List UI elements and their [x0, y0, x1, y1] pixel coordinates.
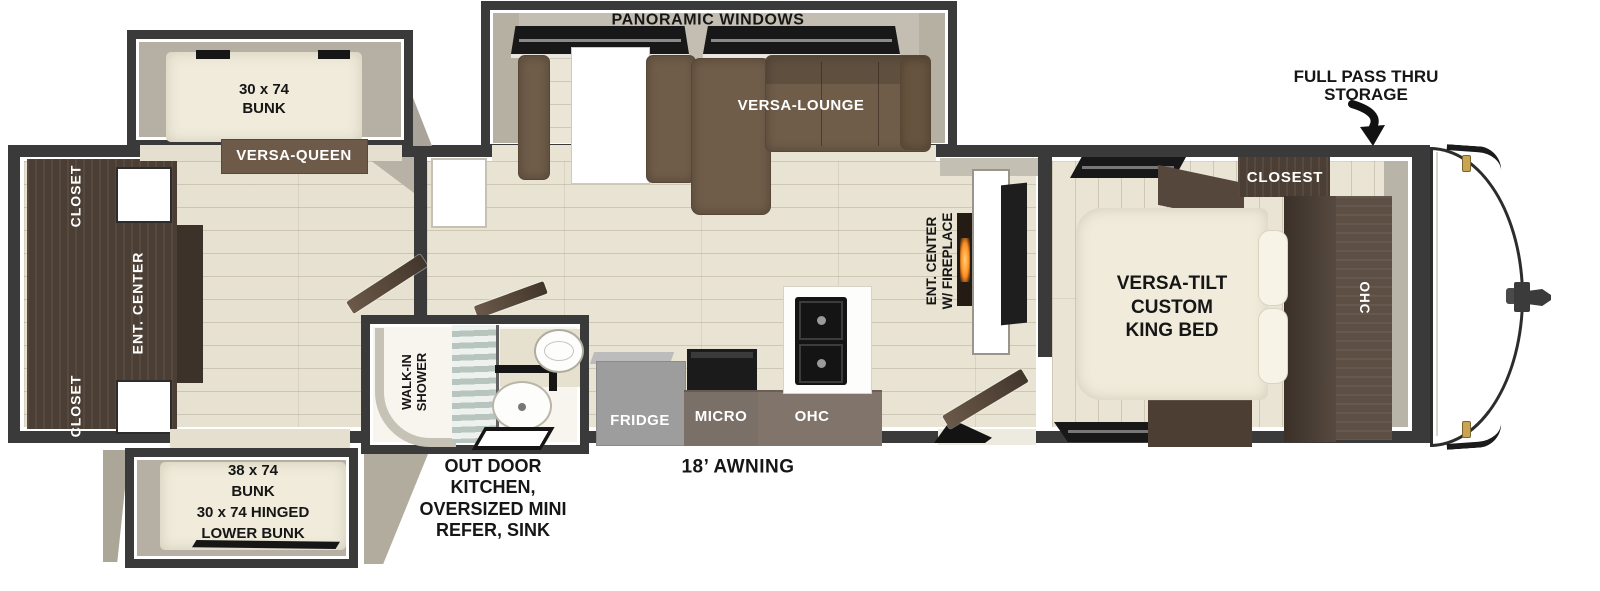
walk-in-shower-label: WALK-IN SHOWER	[399, 353, 429, 412]
kitchen-sink-drain-bottom	[817, 359, 826, 368]
microwave	[687, 349, 757, 391]
bedroom-ohc-cabinet	[1336, 196, 1392, 440]
fridge	[596, 361, 686, 446]
front-cap-seam	[1436, 152, 1438, 436]
floorplan-canvas: CLOSET ENT. CENTER CLOSET 30 x 74 BUNK V…	[0, 0, 1600, 591]
rear-closet-bottom-label: CLOSET	[68, 375, 85, 438]
panoramic-window-right-glass	[711, 39, 892, 42]
rear-ent-center-label: ENT. CENTER	[130, 252, 147, 355]
living-tv	[1001, 183, 1027, 326]
sofa-right-arm	[900, 58, 931, 150]
versa-lounge-label: VERSA-LOUNGE	[738, 97, 865, 115]
rear-cabinet-window-top	[116, 167, 172, 223]
front-cap-trim-bottom	[1445, 422, 1503, 450]
kitchen-sink-bowl-top	[799, 301, 843, 340]
panoramic-window-left-glass	[519, 39, 681, 42]
sofa-mid-section	[646, 55, 696, 183]
king-bed-label-line2: CUSTOM	[1131, 297, 1213, 318]
outdoor-kitchen-line4: REFER, SINK	[436, 520, 550, 540]
top-bunk-frame-right	[318, 50, 350, 59]
bottom-bunk-slide-opening	[170, 429, 350, 448]
toilet-seat-line	[544, 341, 574, 361]
bathroom-counter-edge-v	[549, 371, 557, 391]
bunkroom-partition-wall	[414, 145, 427, 323]
walk-in-shower-line2: SHOWER	[414, 353, 429, 412]
outdoor-kitchen-line2: KITCHEN,	[451, 477, 536, 497]
hitch-coupler	[1514, 282, 1530, 312]
fridge-label: FRIDGE	[610, 412, 670, 430]
bathroom-sink	[492, 381, 552, 431]
walk-in-shower-line1: WALK-IN	[399, 353, 414, 412]
rear-cabinet-window-bottom	[116, 380, 172, 434]
rear-closet-top-label: CLOSET	[68, 165, 85, 228]
panoramic-windows-label: PANORAMIC WINDOWS	[612, 10, 805, 29]
storage-arrow-icon	[1336, 100, 1396, 150]
awning-label: 18’ AWNING	[681, 457, 794, 480]
hitch-tongue	[1529, 289, 1551, 306]
microwave-top-vent	[691, 352, 753, 358]
ent-center-fireplace-line2: W/ FIREPLACE	[940, 213, 956, 310]
bottom-bunk-label-line1: 38 x 74	[228, 462, 278, 479]
sofa-chaise	[691, 58, 771, 215]
king-bed-label: VERSA-TILT CUSTOM KING BED	[1076, 272, 1268, 343]
top-bunk-frame-left	[196, 50, 230, 59]
rear-ent-center-column	[177, 225, 203, 383]
bottom-bunk-label-line3: 30 x 74 HINGED	[197, 504, 310, 521]
bottom-bunk-label: 38 x 74 BUNK 30 x 74 HINGED LOWER BUNK	[160, 460, 346, 544]
versa-queen-label: VERSA-QUEEN	[236, 147, 352, 165]
kitchen-sink-drain-top	[817, 316, 826, 325]
outdoor-kitchen-line1: OUT DOOR	[445, 456, 542, 476]
top-bunk-label-line2: BUNK	[242, 100, 285, 117]
marker-light-bottom	[1462, 421, 1471, 438]
shower-glass-door	[452, 325, 498, 443]
king-bed-label-line1: VERSA-TILT	[1117, 273, 1227, 294]
micro-label: MICRO	[695, 408, 748, 426]
marker-light-top	[1462, 155, 1471, 172]
king-bed-label-line3: KING BED	[1126, 320, 1219, 341]
living-left-window	[431, 158, 487, 228]
panoramic-window-right	[703, 26, 900, 54]
bottom-bunk-label-line4: LOWER BUNK	[201, 525, 304, 542]
kitchen-sink-bowl-bottom	[799, 344, 843, 383]
fireplace-flame	[960, 238, 970, 282]
outdoor-kitchen-label: OUT DOOR KITCHEN, OVERSIZED MINI REFER, …	[388, 456, 598, 541]
bedroom-partition-wall	[1038, 145, 1052, 357]
kitchen-ohc-label: OHC	[795, 408, 830, 426]
bedroom-ohc-label: OHC	[1356, 282, 1372, 315]
kitchen-sink	[795, 297, 847, 385]
toilet	[534, 329, 584, 373]
front-cap-trim-top	[1445, 144, 1503, 172]
ent-center-fireplace-label: ENT. CENTER W/ FIREPLACE	[924, 213, 956, 310]
bedroom-closet-label: CLOSEST	[1247, 169, 1323, 187]
bed-foot-cabinet	[1148, 396, 1252, 447]
bathroom-mat	[471, 427, 554, 450]
bathroom-sink-drain	[518, 403, 526, 411]
fireplace-cabinet	[957, 213, 972, 306]
top-bunk-label-line1: 30 x 74	[239, 81, 289, 98]
outdoor-kitchen-line3: OVERSIZED MINI	[419, 499, 566, 519]
sofa-cushion-seam-2	[878, 62, 879, 146]
sofa-left-arm	[518, 55, 550, 180]
shower-door-track	[496, 325, 499, 443]
sofa-folded-table	[571, 47, 650, 184]
full-pass-thru-line1: FULL PASS THRU	[1294, 67, 1439, 86]
top-bunk-label: 30 x 74 BUNK	[166, 80, 362, 118]
full-pass-thru-label: FULL PASS THRU STORAGE	[1286, 68, 1446, 103]
bottom-bunk-label-line2: BUNK	[231, 483, 274, 500]
bedroom-wardrobe	[1284, 196, 1336, 442]
ent-center-fireplace-line1: ENT. CENTER	[924, 213, 940, 310]
